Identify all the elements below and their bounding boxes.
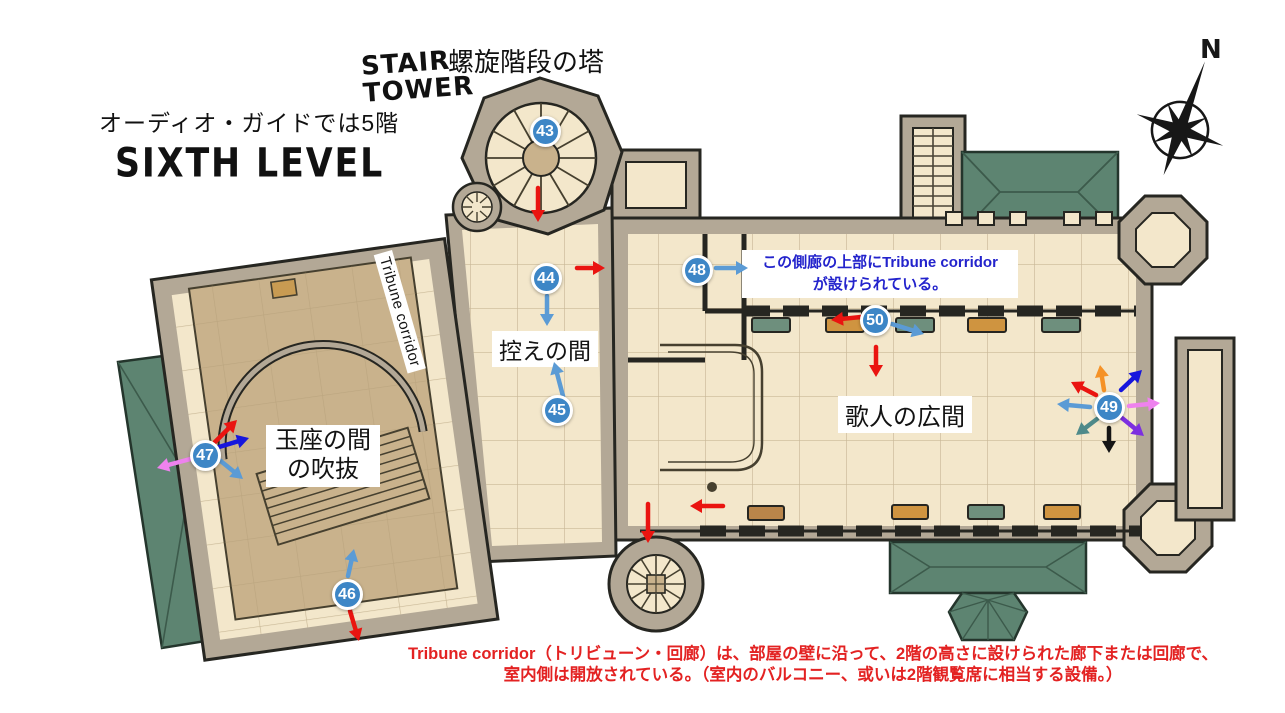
audio-stop-marker-49: 49: [1094, 392, 1125, 423]
audio-stop-marker-47: 47: [190, 440, 221, 471]
audio-stop-marker-46: 46: [332, 579, 363, 610]
floor-plan-page: N オーディオ・ガイドでは5階 SIXTH LEVEL STAIR TOWER …: [0, 0, 1285, 713]
audio-stop-marker-48: 48: [682, 255, 713, 286]
audio-stop-marker-43: 43: [530, 116, 561, 147]
audio-stop-marker-44: 44: [531, 263, 562, 294]
audio-stop-marker-45: 45: [542, 395, 573, 426]
audio-stop-markers: 4344454647484950: [0, 0, 1285, 713]
audio-stop-marker-50: 50: [860, 305, 891, 336]
